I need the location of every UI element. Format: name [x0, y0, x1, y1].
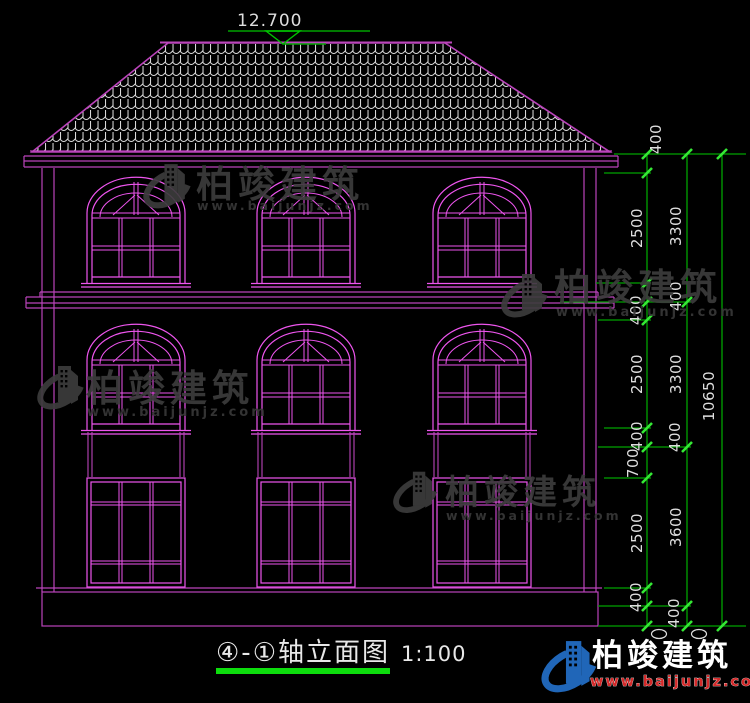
cad-elevation-drawing: 12.700	[0, 0, 750, 703]
roof-elevation-marker: 12.700	[228, 11, 370, 44]
dimension-label: 400	[627, 582, 645, 612]
spandrel-panel	[258, 432, 354, 477]
watermark-brand: 柏竣建筑	[445, 473, 601, 513]
dimension-label: 2500	[628, 513, 646, 553]
watermark-brand: 柏竣建筑	[554, 266, 722, 309]
window-arched	[427, 177, 537, 287]
dimension-label: 3600	[667, 507, 685, 547]
title-block: ④-①轴立面图 1:100	[216, 638, 467, 674]
footer-logo: 柏竣建筑 www.baijunjz.com	[538, 638, 750, 697]
watermark-brand: 柏竣建筑	[86, 367, 254, 410]
drawing-scale: 1:100	[401, 642, 467, 666]
spandrel-panel	[434, 432, 530, 477]
roof-outline	[32, 43, 610, 152]
watermark: 柏竣建筑 www.baijunjz.com	[499, 266, 737, 321]
dimension-lines	[560, 154, 746, 626]
dimension-label: 3300	[667, 206, 685, 246]
dimension-label: 400	[628, 421, 646, 451]
spandrel-panel	[88, 432, 184, 477]
watermark-url: www.baijunjz.com	[556, 305, 737, 320]
roof-elevation-value: 12.700	[237, 11, 302, 31]
dimension-label-total: 10650	[700, 371, 718, 421]
watermark-url: www.baijunjz.com	[197, 198, 373, 213]
right-wall	[584, 168, 596, 592]
dimension-label: 2500	[628, 354, 646, 394]
watermark-logo-icon	[141, 164, 195, 212]
title-underline	[216, 668, 390, 674]
dimension-label: 400	[666, 422, 684, 452]
watermark-url: www.baijunjz.com	[446, 508, 622, 523]
watermark: 柏竣建筑 www.baijunjz.com	[141, 163, 373, 213]
plinth	[36, 588, 602, 626]
window-rect	[257, 478, 355, 587]
window-arched	[427, 324, 537, 434]
dimension-label: 400	[647, 124, 665, 154]
watermark-url: www.baijunjz.com	[87, 405, 268, 420]
watermark: 柏竣建筑 www.baijunjz.com	[35, 366, 268, 420]
drawing-title: ④-①轴立面图	[216, 638, 390, 668]
roof	[24, 43, 618, 168]
dimension-label: 400	[665, 598, 683, 628]
window-rect	[87, 478, 185, 587]
watermark: 柏竣建筑 www.baijunjz.com	[391, 472, 622, 523]
footer-brand: 柏竣建筑	[592, 638, 732, 674]
dimension-labels: 400 2500 3300 400 400 2500 3300 10650 40…	[624, 124, 718, 628]
watermark-logo-icon	[499, 274, 552, 321]
dimension-label: 2500	[628, 208, 646, 248]
dimension-label: 700	[624, 448, 642, 478]
dimension-label: 3300	[667, 354, 685, 394]
footer-url: www.baijunjz.com	[590, 674, 750, 690]
drawing-canvas: 12.700	[0, 0, 750, 703]
